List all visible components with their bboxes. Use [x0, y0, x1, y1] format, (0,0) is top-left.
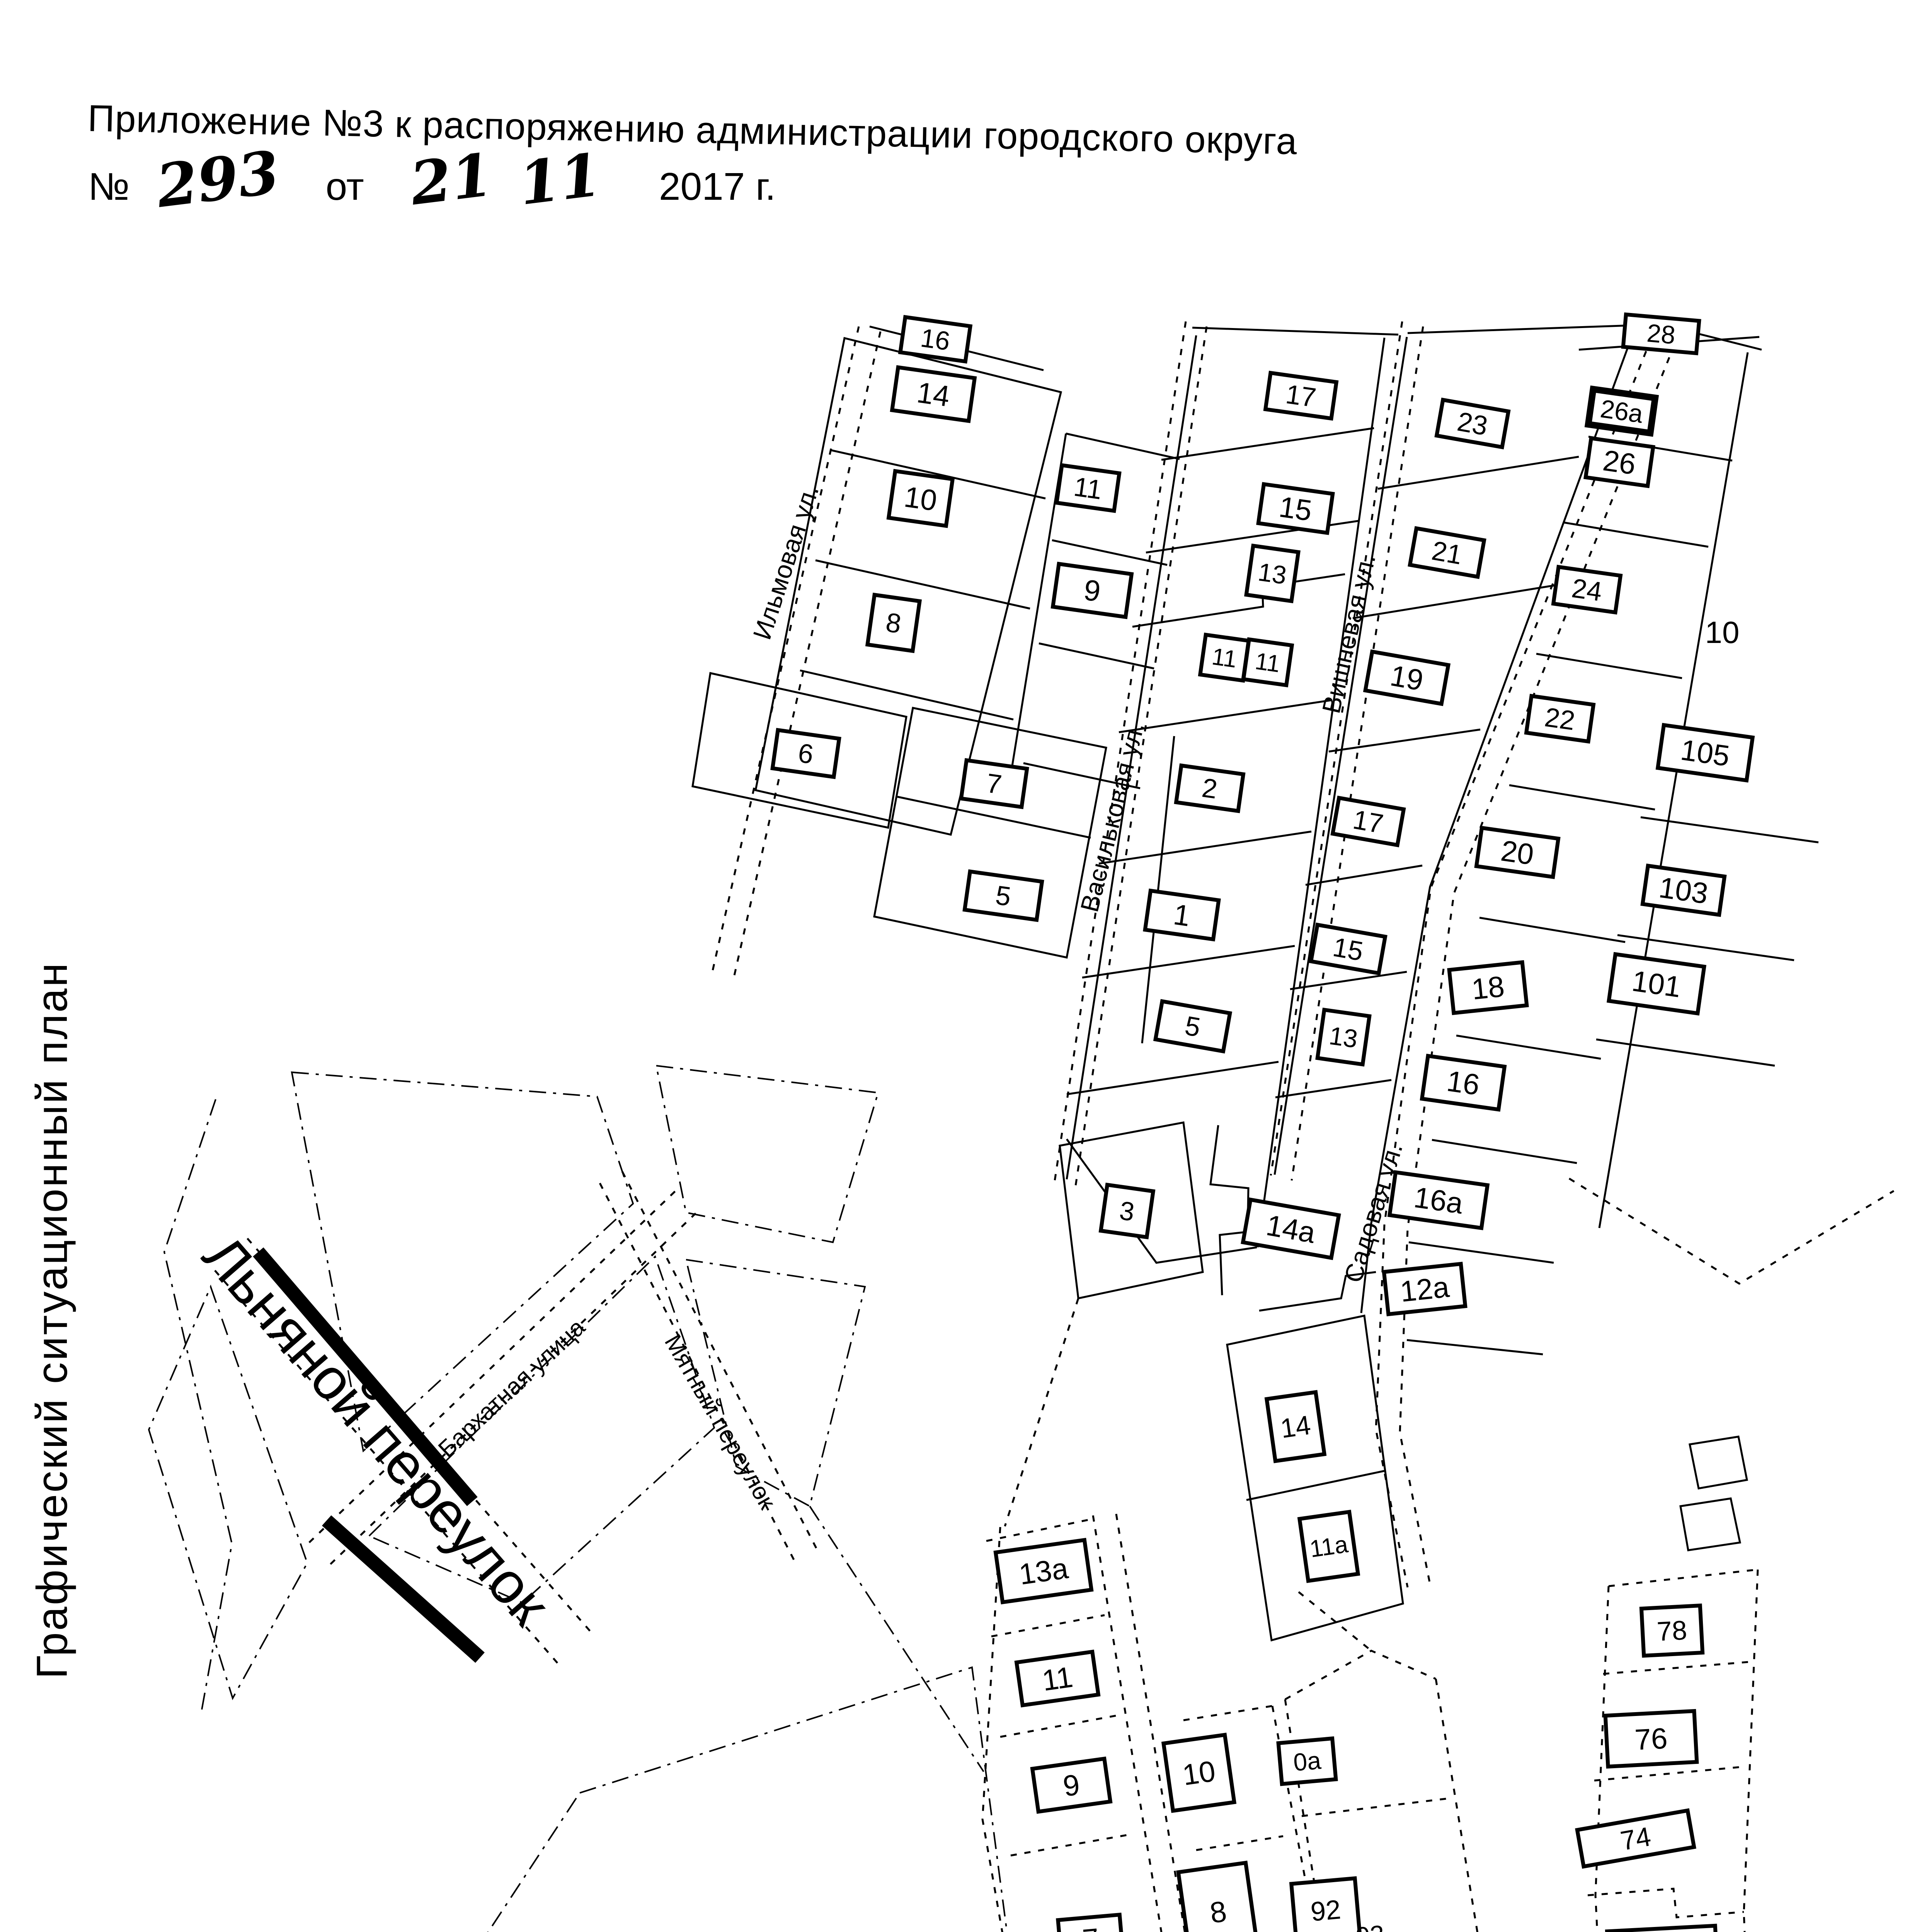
parcel-number-text: 13 — [1327, 1021, 1359, 1053]
parcel-number-box: 13 — [1318, 1010, 1369, 1064]
parcel-number-text: 74 — [1618, 1821, 1653, 1856]
parcel-number-text: 16 — [1445, 1065, 1482, 1102]
parcel-number-box: 14 — [1267, 1392, 1324, 1461]
map-line — [1258, 338, 1384, 1247]
parcel-number-text: 10 — [1705, 615, 1740, 650]
parcel-number-text: 16а — [1412, 1181, 1465, 1220]
parcel-number-box: 10 — [889, 471, 953, 526]
parcel-number-box: 26 — [1586, 438, 1653, 486]
map-line — [1132, 574, 1345, 627]
parcel-number-box: 5 — [965, 871, 1042, 920]
street-name-label: Мятный переулок — [659, 1330, 781, 1514]
parcel-number-text: 26 — [1601, 444, 1638, 481]
parcel-number-text: 11 — [1210, 643, 1238, 673]
map-line — [1192, 328, 1398, 335]
map-line — [622, 1172, 819, 1554]
parcel-number-box: 11 — [1057, 465, 1119, 511]
street-name-label: Льняной переулок — [191, 1223, 563, 1637]
map-line — [1407, 1340, 1543, 1354]
map-line — [1082, 946, 1295, 978]
parcel-number-box: 15 — [1258, 484, 1333, 533]
map-line — [1744, 1570, 1758, 1932]
map-line — [1196, 1836, 1283, 1850]
parcel-number-box: 12а — [1384, 1264, 1465, 1314]
parcel-number-box: 3 — [1101, 1185, 1153, 1237]
parcel-number-box: 16а — [1389, 1172, 1487, 1228]
parcel-number-box: 8 — [1178, 1863, 1258, 1932]
parcel-labels: 1614108675119171513111121523211917151314… — [773, 315, 1753, 1932]
parcel-number-text: 15 — [1331, 932, 1365, 966]
parcel-number-box: 1 — [1145, 891, 1219, 939]
parcel-number-box: 26а — [1588, 389, 1655, 433]
parcel-number-box: 17 — [1333, 798, 1404, 845]
map-line — [1609, 1570, 1758, 1586]
parcel-number-text: 93 — [1355, 1920, 1386, 1932]
parcel-number-text: 0а — [1292, 1746, 1322, 1776]
map-line — [1161, 428, 1374, 460]
parcel-number-box: 16 — [1422, 1056, 1505, 1110]
parcel-number-text: 11а — [1308, 1531, 1350, 1563]
parcel-number-box: 22 — [1526, 696, 1594, 742]
parcel-number-text: 12а — [1399, 1270, 1451, 1308]
map-line — [1479, 918, 1625, 942]
order-month-handwritten: 11 — [516, 145, 604, 214]
map-line — [1596, 1039, 1775, 1066]
parcel-number-box: 15 — [1311, 925, 1385, 973]
map-line — [1569, 1179, 1894, 1284]
map-line — [1142, 736, 1174, 1043]
scanned-map-page: Приложение №3 к распоряжению администрац… — [0, 0, 1917, 1932]
parcel-number-text: 11 — [1040, 1661, 1075, 1697]
parcel-number-box: 2 — [1176, 765, 1243, 811]
map-line — [1246, 1471, 1386, 1500]
parcel-number: 10 — [1705, 615, 1740, 650]
map-line — [1509, 785, 1655, 810]
map-line — [1011, 1835, 1129, 1855]
map-line — [1594, 1767, 1745, 1781]
parcel-number-box: 101 — [1609, 954, 1704, 1013]
parcel-number-text: 26а — [1599, 394, 1645, 429]
map-line — [1183, 1706, 1272, 1720]
street-labels: Ильмовая ул.Васильковая ул.Вишневая ул.С… — [191, 481, 1725, 1932]
map-line — [1067, 1139, 1257, 1263]
map-line — [1099, 832, 1311, 864]
map-line — [991, 1615, 1105, 1636]
map-line — [986, 1519, 1095, 1541]
parcel-number-text: 18 — [1470, 970, 1506, 1006]
map-line — [1227, 1316, 1403, 1640]
year-label: 2017 г. — [659, 165, 776, 208]
map-line — [1378, 457, 1579, 489]
parcel-number-box: 13а — [996, 1540, 1091, 1602]
order-number-handwritten: 293 — [153, 143, 282, 216]
parcel-number-text: 14 — [915, 376, 952, 413]
parcel-number-text: 19 — [1388, 659, 1426, 697]
parcel-number-box: 0а — [1279, 1738, 1336, 1784]
parcel-number-box: 19 — [1365, 651, 1449, 704]
parcel-number-box: 11 — [1200, 635, 1248, 681]
parcel-number-box: 103 — [1643, 866, 1725, 915]
parcel-number-box: 78 — [1641, 1605, 1702, 1656]
parcel-number-box: 24 — [1553, 567, 1621, 612]
map-line — [1302, 1799, 1446, 1816]
parcel-number-text: 7 — [1081, 1922, 1100, 1932]
parcel-number-text: 101 — [1630, 964, 1683, 1004]
map-line — [656, 1066, 878, 1242]
parcel-number-box: 74 — [1577, 1811, 1694, 1867]
parcel-number-text: 105 — [1679, 733, 1731, 773]
map-line — [1603, 1662, 1754, 1674]
map-line — [1290, 972, 1407, 989]
map-line — [1680, 1498, 1740, 1550]
map-line — [1005, 1298, 1078, 1526]
street-name-label: Бархатная улица — [433, 1314, 590, 1463]
map-line — [712, 327, 859, 974]
parcel-number-text: 28 — [1646, 318, 1677, 349]
parcel-number-box: 10 — [1164, 1735, 1234, 1811]
parcel-number-box: 8 — [868, 595, 920, 651]
map-line — [1408, 325, 1655, 333]
parcel-number-box: 14а — [1243, 1200, 1339, 1258]
parcel-number-text: 17 — [1351, 804, 1386, 839]
parcel-number-text: 15 — [1277, 490, 1314, 527]
parcel-number-box: 72 — [1607, 1926, 1717, 1932]
parcel-number-box: 13 — [1246, 546, 1299, 601]
parcel-number-text: 24 — [1570, 573, 1604, 607]
parcel-number-box: 21 — [1410, 528, 1484, 577]
parcel-number-box: 14 — [892, 367, 975, 421]
parcel-number-text: 16 — [919, 323, 952, 356]
map-line — [1456, 1036, 1601, 1059]
map-line — [1299, 1592, 1371, 1651]
parcel-number-text: 22 — [1543, 702, 1577, 736]
parcel-number-box: 76 — [1605, 1711, 1697, 1767]
map-line — [815, 560, 1030, 609]
parcel-number-box: 105 — [1658, 725, 1752, 780]
parcel-number-text: 14 — [1279, 1410, 1313, 1444]
map-line — [1409, 1242, 1554, 1263]
map-line — [369, 1257, 714, 1603]
parcel-number-text: 17 — [1284, 379, 1318, 413]
map-line — [1000, 1716, 1116, 1737]
parcel-number: 93 — [1355, 1920, 1386, 1932]
map-line — [1690, 1437, 1747, 1488]
map-line — [800, 670, 1013, 719]
map-line — [1210, 1125, 1248, 1295]
parcel-number-box: 9 — [1053, 564, 1132, 617]
parcel-number-box: 7 — [1058, 1915, 1123, 1932]
parcel-number-box: 23 — [1437, 400, 1508, 447]
parcel-number-text: 11 — [1072, 471, 1104, 505]
parcel-number-box: 11 — [1016, 1652, 1098, 1705]
situational-map: Ильмовая ул.Васильковая ул.Вишневая ул.С… — [0, 0, 1917, 1932]
parcel-number-text: 11 — [1253, 648, 1282, 678]
map-line — [810, 1506, 984, 1772]
parcel-number-box: 11 — [1243, 639, 1292, 685]
document-header: Приложение №3 к распоряжению администрац… — [88, 97, 1441, 209]
parcel-number-text: 10 — [902, 480, 939, 517]
plan-side-title: Графический ситуационный план — [27, 961, 77, 1679]
map-line — [164, 1099, 232, 1710]
map-line — [1275, 1080, 1391, 1097]
parcel-number-box: 11а — [1299, 1512, 1358, 1581]
parcel-number-text: 92 — [1309, 1894, 1342, 1927]
parcel-number-box: 20 — [1476, 828, 1558, 877]
map-line — [1066, 434, 1180, 459]
parcel-number-box: 9 — [1032, 1759, 1110, 1811]
map-line — [1067, 1062, 1279, 1094]
parcel-number-text: 76 — [1634, 1722, 1668, 1756]
parcel-number-text: 13 — [1256, 557, 1288, 589]
ot-label: от — [326, 165, 364, 208]
map-line — [1432, 1140, 1577, 1163]
parcel-number-text: 23 — [1455, 406, 1490, 441]
parcel-number-box: 16 — [900, 317, 970, 362]
map-line — [1536, 654, 1682, 678]
map-line — [1436, 1679, 1531, 1932]
parcel-number-text: 103 — [1657, 871, 1710, 910]
map-line — [1285, 1651, 1436, 1699]
street-name-label: Ильмовая ул. — [747, 481, 824, 643]
number-sign: № — [88, 165, 129, 208]
parcel-number-text: 13а — [1017, 1552, 1070, 1591]
parcel-number-box: 5 — [1156, 1001, 1230, 1051]
parcel-number-text: 20 — [1499, 834, 1536, 871]
parcel-number-text: 21 — [1430, 535, 1464, 570]
parcel-number-text: 10 — [1180, 1755, 1217, 1792]
map-line — [1119, 700, 1331, 732]
parcel-number-text: 78 — [1656, 1615, 1688, 1647]
parcel-number-box: 28 — [1623, 315, 1699, 353]
map-line — [1039, 643, 1154, 668]
map-line — [483, 1667, 1078, 1932]
map-line — [1563, 522, 1708, 547]
map-line — [734, 332, 880, 979]
parcel-number-box: 7 — [961, 760, 1027, 807]
map-line — [1329, 730, 1480, 752]
parcel-number-box: 17 — [1265, 373, 1336, 418]
parcel-number-box: 18 — [1449, 962, 1527, 1013]
parcel-number-box: 92 — [1291, 1878, 1360, 1932]
map-line — [1588, 1889, 1744, 1917]
order-day-handwritten: 21 — [407, 145, 495, 214]
parcel-number-box: 6 — [773, 730, 839, 777]
